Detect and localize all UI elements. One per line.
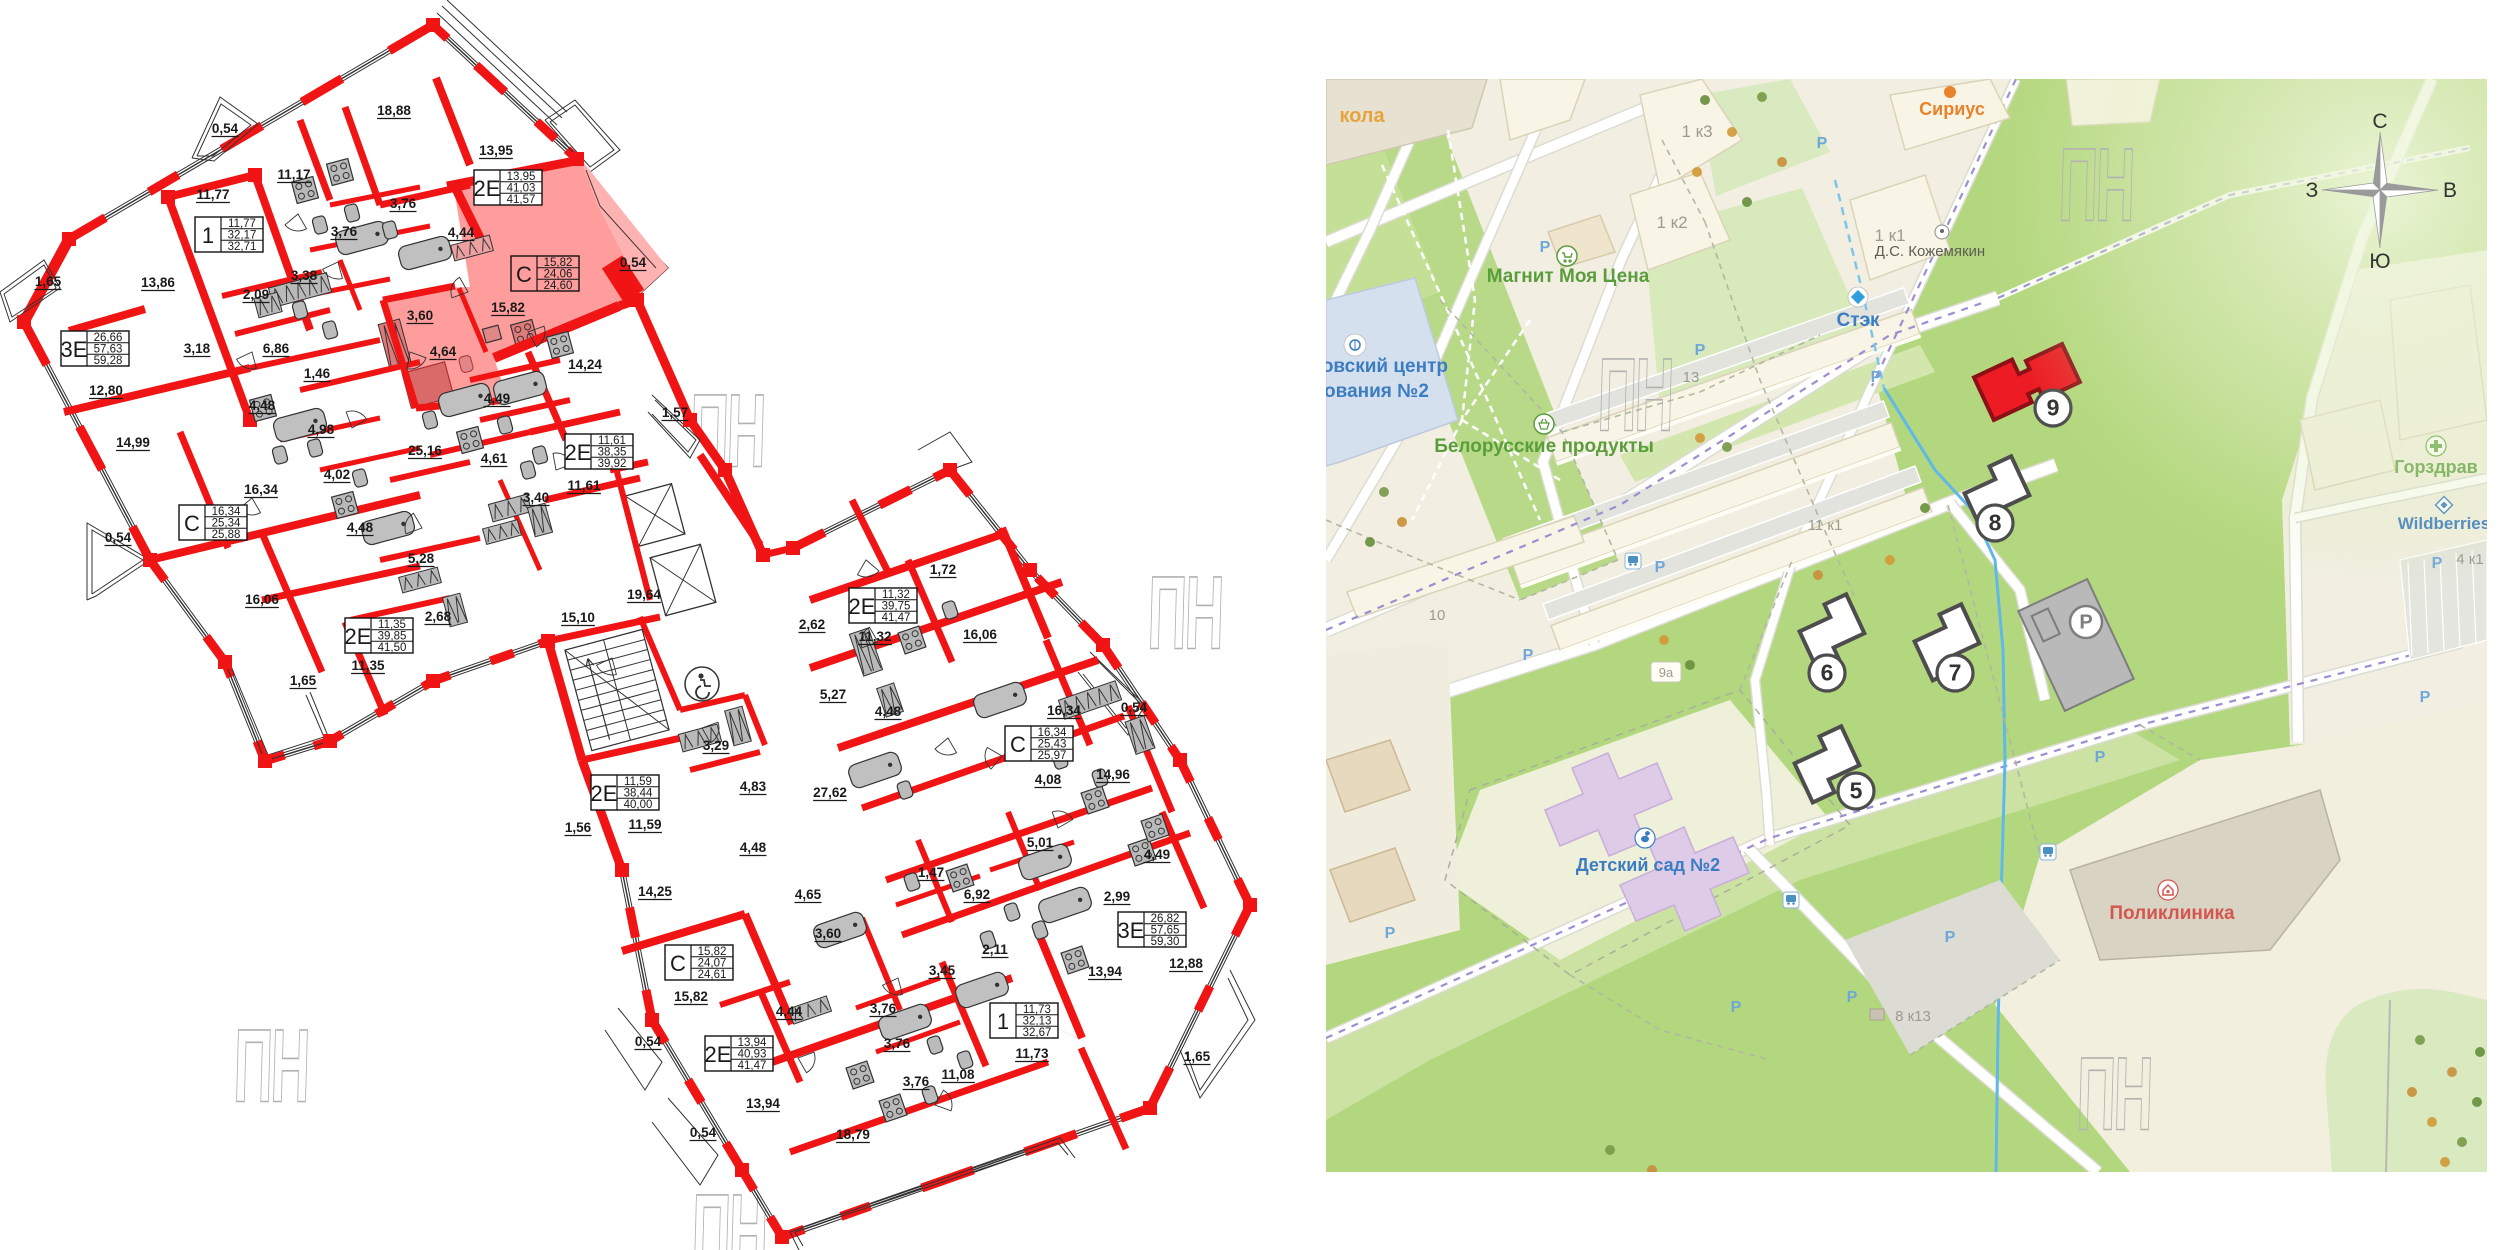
svg-text:38,44: 38,44 [624,788,653,800]
svg-text:Стэк: Стэк [1836,310,1880,331]
svg-text:ловский центр: ловский центр [1310,356,1448,377]
svg-text:2,11: 2,11 [982,942,1008,957]
svg-text:4,02: 4,02 [324,467,350,482]
svg-text:41,47: 41,47 [738,1060,767,1072]
svg-text:9а: 9а [1659,665,1674,680]
svg-text:32,71: 32,71 [228,241,257,253]
svg-text:4,65: 4,65 [795,887,822,902]
svg-text:12,88: 12,88 [1169,956,1203,971]
svg-text:26,82: 26,82 [1151,913,1180,925]
svg-text:С: С [1010,732,1026,757]
svg-text:С: С [670,951,686,976]
svg-text:3,76: 3,76 [870,1001,897,1016]
svg-text:24,07: 24,07 [698,958,727,970]
svg-text:57,65: 57,65 [1151,925,1180,937]
svg-text:ПН: ПН [1146,554,1223,671]
svg-text:25,16: 25,16 [408,443,442,458]
svg-text:15,82: 15,82 [674,989,708,1004]
svg-text:11,73: 11,73 [1015,1046,1049,1061]
svg-text:16,34: 16,34 [1047,703,1081,718]
svg-text:0,54: 0,54 [635,1034,662,1049]
svg-text:24,60: 24,60 [544,280,573,292]
svg-text:11,77: 11,77 [196,187,229,202]
svg-text:ПН: ПН [2057,126,2134,243]
svg-text:8: 8 [1989,510,2002,536]
svg-text:14,96: 14,96 [1096,767,1130,782]
svg-text:11,59: 11,59 [624,776,652,788]
svg-text:3,38: 3,38 [291,268,318,283]
svg-text:4,49: 4,49 [484,391,510,406]
svg-text:41,03: 41,03 [507,183,536,195]
svg-text:5,28: 5,28 [408,551,435,566]
svg-text:В: В [2443,179,2457,202]
svg-text:13,95: 13,95 [479,143,513,158]
svg-text:6,86: 6,86 [263,341,290,356]
svg-text:С: С [2372,110,2387,133]
svg-text:10: 10 [1429,607,1446,624]
svg-text:3,18: 3,18 [184,341,211,356]
svg-text:P: P [1385,925,1396,942]
svg-text:11,59: 11,59 [628,817,661,832]
svg-text:0,54: 0,54 [620,255,647,270]
svg-text:11,32: 11,32 [858,629,891,644]
svg-text:4,44: 4,44 [776,1004,803,1019]
svg-text:24,61: 24,61 [698,969,727,981]
svg-text:13,94: 13,94 [746,1096,780,1111]
svg-text:6,92: 6,92 [964,887,990,902]
svg-text:18,88: 18,88 [377,103,411,118]
svg-text:0,54: 0,54 [212,121,239,136]
svg-text:32,67: 32,67 [1023,1027,1052,1039]
svg-text:P: P [1731,999,1742,1016]
svg-text:11,08: 11,08 [941,1067,975,1082]
svg-text:3,76: 3,76 [903,1074,930,1089]
svg-text:39,85: 39,85 [378,631,407,643]
svg-text:41,57: 41,57 [507,194,536,206]
svg-text:11,32: 11,32 [882,589,910,601]
svg-text:13,94: 13,94 [738,1037,767,1049]
svg-text:3,76: 3,76 [390,196,417,211]
svg-text:4,98: 4,98 [308,422,335,437]
svg-text:P: P [1540,239,1551,256]
svg-text:3,60: 3,60 [815,926,841,941]
svg-text:13,95: 13,95 [507,171,536,183]
svg-text:25,97: 25,97 [1038,750,1067,762]
svg-text:14,25: 14,25 [638,884,672,899]
svg-text:15,82: 15,82 [491,300,525,315]
svg-text:0,54: 0,54 [690,1125,717,1140]
svg-text:5,01: 5,01 [1027,835,1054,850]
svg-text:27,62: 27,62 [813,785,847,800]
svg-text:3,60: 3,60 [407,308,433,323]
svg-text:P: P [1817,135,1828,152]
svg-text:1,56: 1,56 [565,820,592,835]
svg-text:P: P [1871,369,1882,386]
svg-text:4,44: 4,44 [448,225,475,240]
svg-text:кола: кола [1339,105,1385,127]
svg-text:0,54: 0,54 [105,530,132,545]
svg-text:15,10: 15,10 [561,610,595,625]
svg-text:59,30: 59,30 [1151,936,1180,948]
svg-text:15,82: 15,82 [544,257,573,269]
svg-text:32,13: 32,13 [1023,1016,1052,1028]
svg-text:1,72: 1,72 [930,562,956,577]
svg-text:P: P [1945,929,1956,946]
svg-text:13,86: 13,86 [141,275,175,290]
svg-text:18,79: 18,79 [836,1127,870,1142]
svg-text:С: С [516,262,532,287]
svg-text:11,61: 11,61 [598,435,626,447]
svg-text:4,49: 4,49 [1144,847,1170,862]
svg-text:4,48: 4,48 [875,704,902,719]
svg-text:1: 1 [202,223,214,248]
svg-text:Д.С. Кожемякин: Д.С. Кожемякин [1875,243,1985,260]
svg-text:1,46: 1,46 [304,366,331,381]
svg-text:P: P [2420,689,2431,706]
svg-text:40,93: 40,93 [738,1049,767,1061]
svg-text:Детский сад №2: Детский сад №2 [1576,855,1720,875]
svg-text:39,75: 39,75 [882,601,911,613]
svg-text:P: P [1655,559,1666,576]
svg-text:1: 1 [997,1009,1009,1034]
svg-text:41,50: 41,50 [378,642,407,654]
svg-text:1,47: 1,47 [918,865,944,880]
svg-text:2Е: 2Е [474,176,501,201]
svg-text:16,34: 16,34 [1038,727,1067,739]
svg-text:5,27: 5,27 [820,687,846,702]
svg-text:Магнит Моя Цена: Магнит Моя Цена [1487,266,1650,287]
svg-text:P: P [2079,612,2092,634]
svg-text:16,34: 16,34 [244,482,278,497]
svg-text:32,17: 32,17 [228,230,257,242]
svg-text:4,64: 4,64 [430,344,457,359]
svg-text:3,40: 3,40 [523,490,549,505]
svg-text:1 к3: 1 к3 [1681,122,1712,141]
svg-text:4,48: 4,48 [347,520,374,535]
svg-text:ПН: ПН [1596,336,1673,453]
svg-text:2Е: 2Е [705,1042,732,1067]
svg-text:11,77: 11,77 [228,218,256,230]
svg-text:5: 5 [1850,778,1863,804]
svg-text:13,94: 13,94 [1088,964,1122,979]
svg-text:19,64: 19,64 [627,587,661,602]
svg-text:1,57: 1,57 [662,405,688,420]
svg-text:4,48: 4,48 [740,840,767,855]
svg-text:11,61: 11,61 [567,478,601,493]
svg-text:1,65: 1,65 [290,673,317,688]
svg-text:11,73: 11,73 [1023,1004,1051,1016]
svg-text:2Е: 2Е [591,781,618,806]
svg-text:2Е: 2Е [345,624,372,649]
svg-text:1 к2: 1 к2 [1656,213,1687,232]
svg-text:4,48: 4,48 [249,398,276,413]
svg-text:24,06: 24,06 [544,269,573,281]
svg-text:2,68: 2,68 [425,609,452,624]
svg-text:С: С [184,511,200,536]
svg-text:7: 7 [1949,660,1962,686]
svg-text:1,65: 1,65 [1184,1049,1211,1064]
svg-text:3Е: 3Е [1118,918,1145,943]
svg-text:Сириус: Сириус [1919,99,1985,119]
svg-text:ПН: ПН [232,1007,309,1124]
svg-text:3,29: 3,29 [703,738,729,753]
svg-text:зования №2: зования №2 [1315,381,1429,402]
svg-text:11,35: 11,35 [378,619,406,631]
svg-text:2Е: 2Е [565,440,592,465]
svg-text:25,43: 25,43 [1038,739,1067,751]
svg-text:11,17: 11,17 [277,167,310,182]
svg-text:6: 6 [1821,660,1834,686]
svg-text:4,08: 4,08 [1035,772,1062,787]
svg-text:12,80: 12,80 [89,383,123,398]
svg-text:14,99: 14,99 [116,435,150,450]
svg-text:15,82: 15,82 [698,946,727,958]
svg-text:3Е: 3Е [61,337,88,362]
svg-text:39,92: 39,92 [598,458,627,470]
svg-text:3,76: 3,76 [884,1036,911,1051]
svg-text:2Е: 2Е [849,594,876,619]
svg-text:3,76: 3,76 [331,224,358,239]
svg-text:41,47: 41,47 [882,612,911,624]
svg-text:2,09: 2,09 [243,287,269,302]
svg-text:13: 13 [1683,369,1700,386]
svg-text:16,06: 16,06 [963,627,997,642]
svg-text:11 к1: 11 к1 [1808,517,1843,534]
svg-text:P: P [1695,342,1706,359]
svg-text:P: P [1523,647,1534,664]
svg-text:14,24: 14,24 [568,357,602,372]
svg-text:11,35: 11,35 [351,658,385,673]
svg-text:57,63: 57,63 [94,344,123,356]
svg-text:3,45: 3,45 [929,963,956,978]
svg-text:2,99: 2,99 [1104,889,1130,904]
svg-text:16,34: 16,34 [212,506,241,518]
svg-text:25,88: 25,88 [212,529,241,541]
svg-text:16,06: 16,06 [245,592,279,607]
svg-text:25,34: 25,34 [212,518,241,530]
svg-text:З: З [2306,179,2319,202]
svg-text:8 к13: 8 к13 [1895,1008,1931,1025]
svg-text:1,65: 1,65 [35,274,62,289]
svg-text:59,28: 59,28 [94,355,123,367]
svg-text:ПН: ПН [2075,1035,2152,1152]
svg-text:2,62: 2,62 [799,617,825,632]
svg-text:Поликлиника: Поликлиника [2109,903,2235,924]
svg-text:38,35: 38,35 [598,447,627,459]
svg-text:4,61: 4,61 [481,451,508,466]
svg-text:P: P [1847,989,1858,1006]
svg-text:Ю: Ю [2369,250,2390,273]
svg-text:26,66: 26,66 [94,332,123,344]
svg-text:4,83: 4,83 [740,779,767,794]
svg-text:40,00: 40,00 [624,799,653,811]
svg-text:0,54: 0,54 [1121,700,1148,715]
svg-text:P: P [2095,749,2106,766]
